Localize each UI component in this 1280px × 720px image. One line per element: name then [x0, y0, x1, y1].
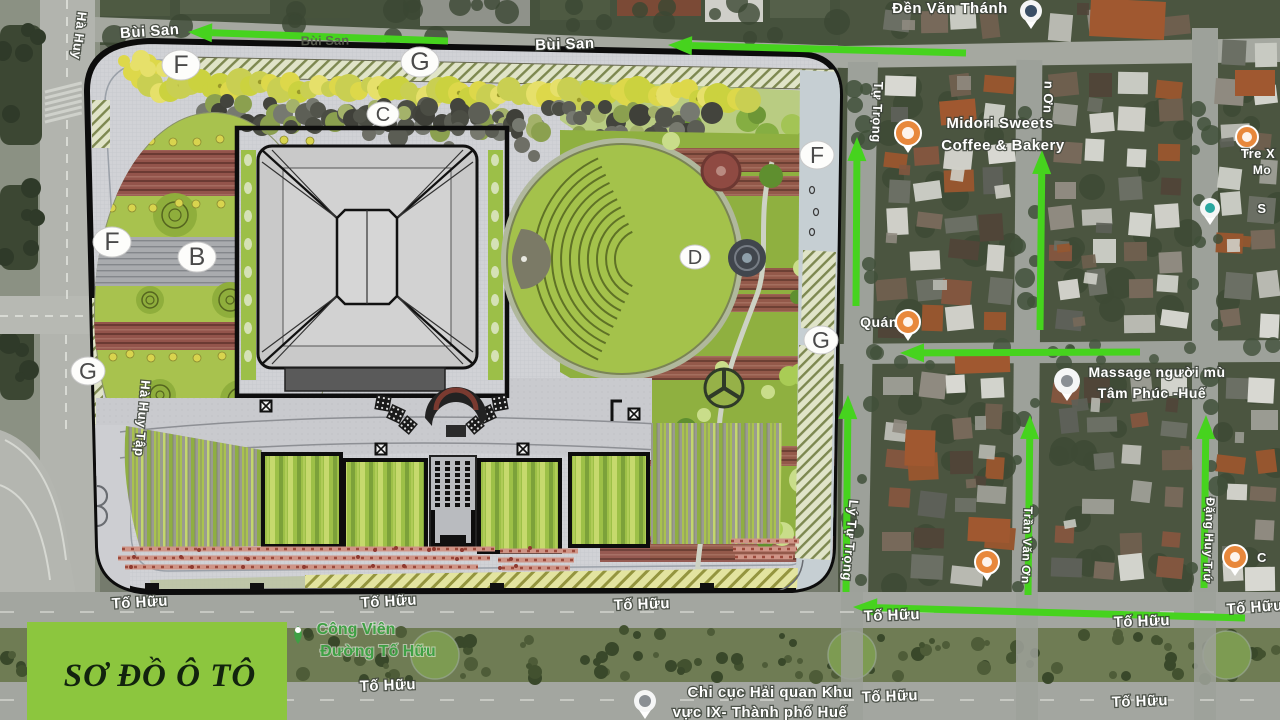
svg-text:Tố Hữu: Tố Hữu	[359, 676, 416, 695]
svg-text:n Ơn: n Ơn	[1040, 81, 1056, 114]
svg-text:Tâm Phúc -Huế: Tâm Phúc -Huế	[1098, 385, 1206, 401]
svg-text:Đường Tố Hữu: Đường Tố Hữu	[320, 643, 435, 660]
svg-text:Tố Hữu: Tố Hữu	[1113, 612, 1170, 631]
svg-text:F: F	[173, 51, 188, 79]
svg-text:vực IX- Thành phố Huế: vực IX- Thành phố Huế	[673, 704, 848, 720]
svg-text:Đền Văn Thánh: Đền Văn Thánh	[892, 0, 1008, 17]
svg-text:S: S	[1257, 201, 1266, 216]
svg-text:Tự Trọng: Tự Trọng	[869, 81, 886, 143]
svg-text:Tố Hữu: Tố Hữu	[1226, 597, 1280, 618]
svg-text:C: C	[376, 104, 390, 126]
svg-text:Công Viên: Công Viên	[317, 621, 396, 638]
svg-text:Massage người mù: Massage người mù	[1088, 364, 1225, 380]
svg-text:Midori Sweets: Midori Sweets	[946, 115, 1053, 132]
svg-text:Tố Hữu: Tố Hữu	[861, 687, 918, 706]
svg-text:Tố Hữu: Tố Hữu	[1111, 692, 1168, 711]
svg-text:Trần Văn Ơn: Trần Văn Ơn	[1019, 506, 1036, 584]
svg-text:Coffee & Bakery: Coffee & Bakery	[941, 137, 1065, 154]
svg-text:D: D	[688, 247, 702, 269]
svg-text:Tố Hữu: Tố Hữu	[613, 595, 670, 614]
svg-text:Tố Hữu: Tố Hữu	[360, 592, 417, 612]
svg-text:Đặng Huy Trứ: Đặng Huy Trứ	[1201, 497, 1218, 583]
svg-text:C: C	[1257, 550, 1267, 565]
svg-text:F: F	[104, 228, 119, 256]
svg-text:Tố Hữu: Tố Hữu	[863, 606, 920, 625]
svg-text:F: F	[810, 142, 824, 168]
svg-text:Tre X: Tre X	[1241, 146, 1275, 161]
svg-text:Mo: Mo	[1253, 163, 1271, 177]
svg-text:G: G	[79, 358, 97, 384]
svg-text:Quán: Quán	[860, 314, 898, 330]
svg-text:G: G	[410, 48, 429, 76]
svg-text:Bùi San: Bùi San	[535, 35, 595, 54]
svg-text:Chi cục Hải quan Khu: Chi cục Hải quan Khu	[687, 684, 852, 701]
svg-text:B: B	[189, 243, 206, 271]
svg-text:SƠ ĐỒ Ô TÔ: SƠ ĐỒ Ô TÔ	[64, 655, 256, 694]
svg-text:Tố Hữu: Tố Hữu	[111, 593, 168, 613]
svg-text:Bùi San: Bùi San	[301, 33, 350, 49]
svg-text:G: G	[812, 327, 830, 353]
